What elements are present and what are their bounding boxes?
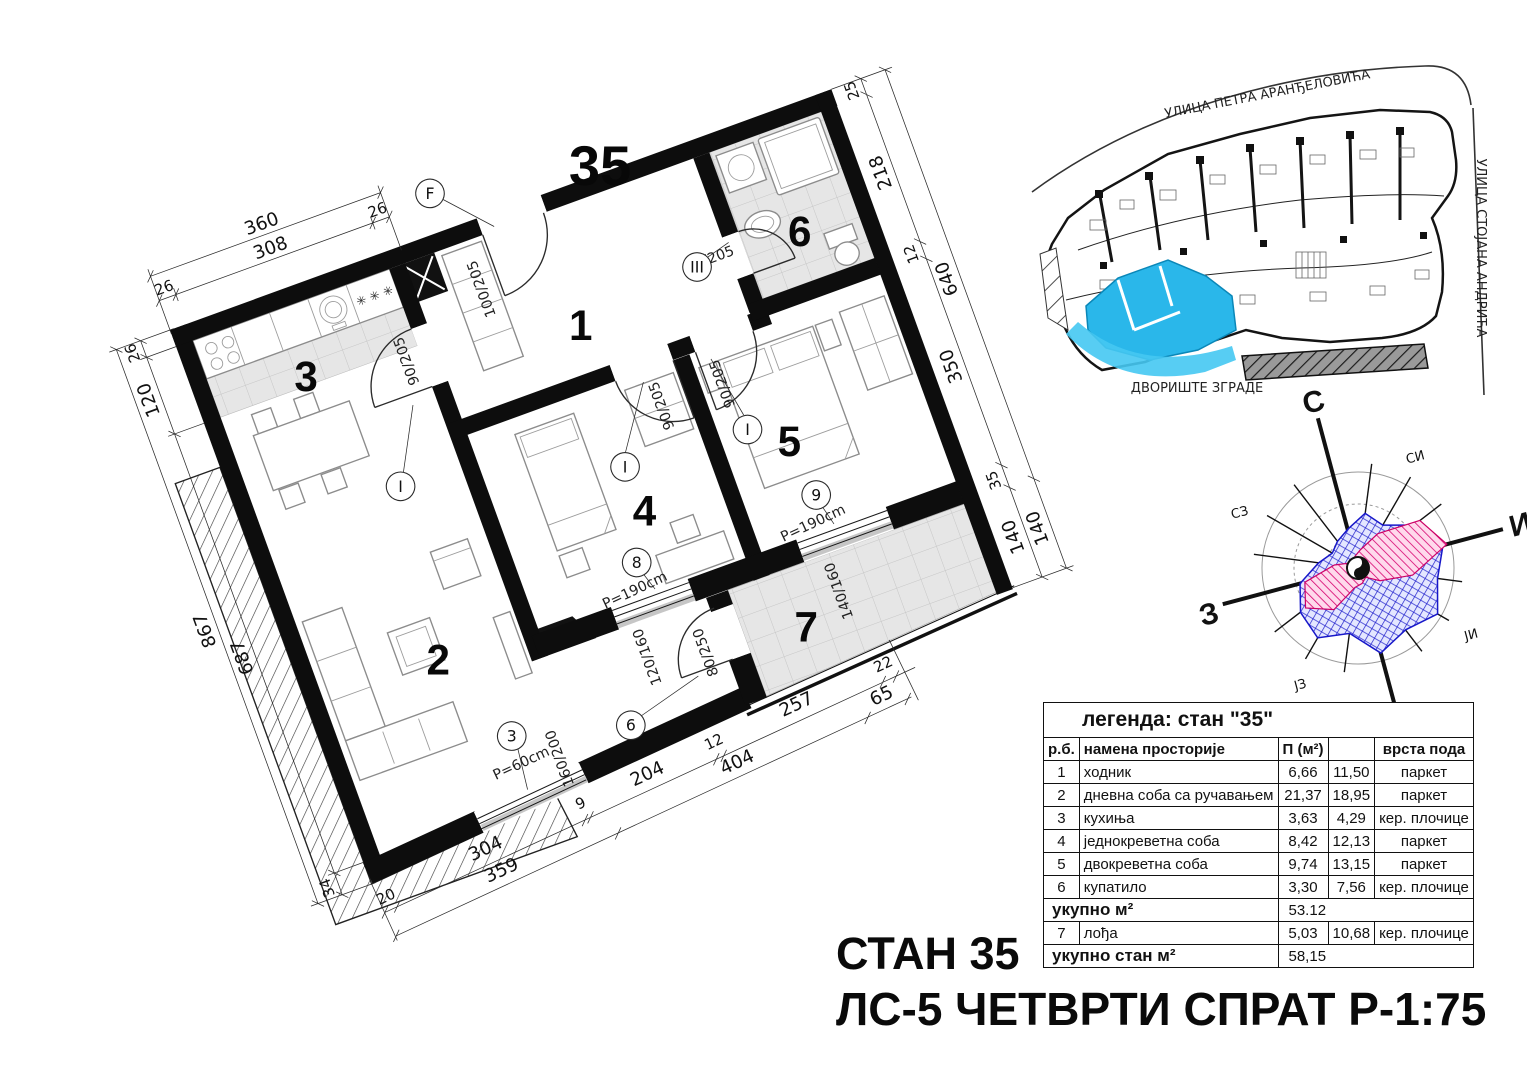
neighbour-section-bar bbox=[1242, 344, 1428, 380]
total-value: 53.12 bbox=[1278, 899, 1473, 922]
room-label-loggia: 7 bbox=[795, 604, 818, 651]
cell-area2: 4,29 bbox=[1328, 807, 1375, 830]
room-label-living: 2 bbox=[426, 636, 449, 683]
table-row: 3 кухиња 3,63 4,29 кер. плочице bbox=[1044, 807, 1474, 830]
room-label-bath: 6 bbox=[788, 208, 811, 255]
table-row: 2 дневна соба са ручавањем 21,37 18,95 п… bbox=[1044, 784, 1474, 807]
compass-north: С bbox=[1299, 384, 1328, 421]
svg-text:257: 257 bbox=[776, 688, 817, 722]
drawing-sheet: ✳ ✳ ✳ bbox=[0, 0, 1527, 1080]
svg-text:6: 6 bbox=[626, 716, 636, 735]
svg-text:218: 218 bbox=[865, 152, 897, 192]
cell-num: 2 bbox=[1044, 784, 1080, 807]
courtyard-label: ДВОРИШТЕ ЗГРАДЕ bbox=[1131, 381, 1263, 396]
legend-title: легенда: стан "35" bbox=[1044, 703, 1474, 738]
svg-text:9: 9 bbox=[573, 793, 589, 813]
svg-text:350: 350 bbox=[936, 346, 968, 386]
room-label-bedroom5: 5 bbox=[778, 418, 801, 465]
cell-area2: 18,95 bbox=[1328, 784, 1375, 807]
cell-area: 3,63 bbox=[1278, 807, 1328, 830]
cell-area2: 11,50 bbox=[1328, 761, 1375, 784]
svg-text:III: III bbox=[690, 257, 704, 276]
cell-num: 4 bbox=[1044, 830, 1080, 853]
apartment-number: 35 bbox=[569, 134, 631, 197]
svg-text:640: 640 bbox=[931, 259, 963, 299]
svg-text:I: I bbox=[745, 420, 750, 439]
svg-text:35: 35 bbox=[982, 468, 1005, 492]
cell-name: двокреветна соба bbox=[1079, 853, 1278, 876]
cell-floor: паркет bbox=[1375, 761, 1474, 784]
room-label-kitchen: 3 bbox=[294, 353, 317, 400]
compass-sw: ЈЗ bbox=[1292, 677, 1309, 695]
svg-text:25: 25 bbox=[840, 79, 863, 103]
cell-area: 6,66 bbox=[1278, 761, 1328, 784]
table-row: 6 купатило 3,30 7,56 кер. плочице bbox=[1044, 876, 1474, 899]
cell-name: кухиња bbox=[1079, 807, 1278, 830]
svg-text:26: 26 bbox=[121, 341, 144, 365]
cell-name: ходник bbox=[1079, 761, 1278, 784]
svg-text:3: 3 bbox=[507, 726, 517, 745]
svg-text:12: 12 bbox=[900, 242, 923, 266]
col-header-rb: р.б. bbox=[1044, 738, 1080, 761]
room-label-bedroom4: 4 bbox=[633, 487, 657, 534]
title-floor-scale: ЛС-5 ЧЕТВРТИ СПРАТ Р-1:75 bbox=[836, 980, 1486, 1038]
svg-text:120: 120 bbox=[133, 380, 165, 420]
svg-text:120/160: 120/160 bbox=[630, 626, 665, 687]
cell-area: 21,37 bbox=[1278, 784, 1328, 807]
col-header-area2 bbox=[1328, 738, 1375, 761]
svg-text:F: F bbox=[425, 184, 434, 203]
cell-area: 9,74 bbox=[1278, 853, 1328, 876]
svg-text:867: 867 bbox=[190, 610, 222, 650]
cell-name: купатило bbox=[1079, 876, 1278, 899]
cell-name: дневна соба са ручавањем bbox=[1079, 784, 1278, 807]
col-header-area: П (м²) bbox=[1278, 738, 1328, 761]
svg-text:404: 404 bbox=[717, 746, 758, 780]
cell-area2: 13,15 bbox=[1328, 853, 1375, 876]
cell-area2: 12,13 bbox=[1328, 830, 1375, 853]
cell-area: 8,42 bbox=[1278, 830, 1328, 853]
title-block: СТАН 35 ЛС-5 ЧЕТВРТИ СПРАТ Р-1:75 bbox=[836, 928, 1486, 1038]
table-row: 1 ходник 6,66 11,50 паркет bbox=[1044, 761, 1474, 784]
cell-num: 3 bbox=[1044, 807, 1080, 830]
total-label: укупно м² bbox=[1044, 899, 1279, 922]
cell-num: 1 bbox=[1044, 761, 1080, 784]
cell-area: 3,30 bbox=[1278, 876, 1328, 899]
cell-floor: кер. плочице bbox=[1375, 876, 1474, 899]
compass-east: И bbox=[1506, 506, 1527, 543]
svg-text:9: 9 bbox=[811, 485, 821, 504]
site-plan-inset: УЛИЦА ПЕТРА АРАНЂЕЛОВИЋА УЛИЦА СТОЈАНА А… bbox=[1032, 66, 1488, 396]
svg-text:I: I bbox=[623, 457, 628, 476]
street-label-right: УЛИЦА СТОЈАНА АНДРИЋА bbox=[1473, 159, 1488, 338]
cell-floor: паркет bbox=[1375, 853, 1474, 876]
svg-text:8: 8 bbox=[632, 553, 642, 572]
compass-nw: СЗ bbox=[1229, 504, 1250, 523]
room-label-hall: 1 bbox=[569, 302, 592, 349]
table-row: 5 двокреветна соба 9,74 13,15 паркет bbox=[1044, 853, 1474, 876]
svg-text:140: 140 bbox=[1022, 508, 1054, 548]
cell-floor: кер. плочице bbox=[1375, 807, 1474, 830]
cell-floor: паркет bbox=[1375, 830, 1474, 853]
cell-name: једнокреветна соба bbox=[1079, 830, 1278, 853]
cell-floor: паркет bbox=[1375, 784, 1474, 807]
cell-num: 5 bbox=[1044, 853, 1080, 876]
cell-area2: 7,56 bbox=[1328, 876, 1375, 899]
col-header-floor: врста пода bbox=[1375, 738, 1474, 761]
compass-west: З bbox=[1196, 596, 1223, 633]
svg-text:12: 12 bbox=[701, 730, 726, 754]
title-apartment: СТАН 35 bbox=[836, 928, 1486, 980]
col-header-name: намена просторије bbox=[1079, 738, 1278, 761]
svg-text:I: I bbox=[398, 477, 403, 496]
cell-num: 6 bbox=[1044, 876, 1080, 899]
table-row: 4 једнокреветна соба 8,42 12,13 паркет bbox=[1044, 830, 1474, 853]
total-row: укупно м² 53.12 bbox=[1044, 899, 1474, 922]
svg-text:80/250: 80/250 bbox=[690, 626, 722, 679]
compass-ne: СИ bbox=[1404, 448, 1426, 467]
compass-se: ЈИ bbox=[1462, 626, 1480, 644]
